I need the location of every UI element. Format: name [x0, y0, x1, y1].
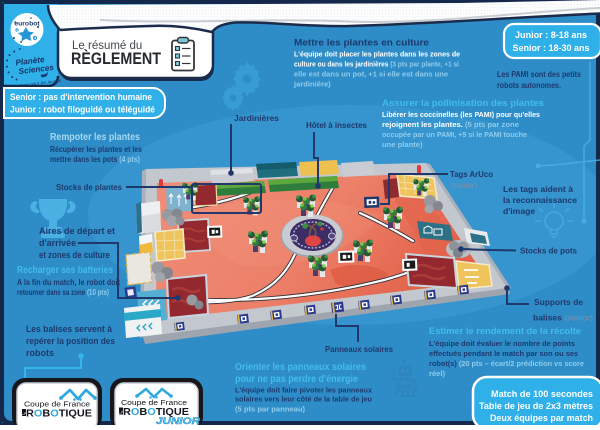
svg-text:Stocks de plantes: Stocks de plantes [56, 182, 122, 192]
svg-text:A la fin du match, le robot do: A la fin du match, le robot doit [17, 278, 120, 287]
svg-text:effectués pendant le match par: effectués pendant le match par son ou se… [429, 349, 578, 358]
svg-text:L'équipe doit faire pivoter le: L'équipe doit faire pivoter les panneaux [235, 386, 373, 395]
svg-text:Récupérer les plantes et les: Récupérer les plantes et les [50, 145, 143, 154]
svg-text:robots autonomes.: robots autonomes. [497, 81, 561, 90]
svg-text:Hôtel à insectes: Hôtel à insectes [306, 120, 367, 130]
svg-text:pour ne pas perdre d'énergie: pour ne pas perdre d'énergie [235, 374, 358, 385]
svg-text:Les PAMI sont des petits: Les PAMI sont des petits [497, 70, 581, 79]
svg-text:Match de 100 secondes: Match de 100 secondes [491, 389, 593, 400]
svg-text:mettre dans les pots (4 pts): mettre dans les pots (4 pts) [50, 155, 140, 164]
svg-text:Senior : 18-30 ans: Senior : 18-30 ans [513, 43, 590, 53]
svg-text:une plante): une plante) [382, 140, 423, 149]
svg-text:LA: LA [118, 410, 124, 415]
svg-text:ROBOTIQUE: ROBOTIQUE [26, 409, 92, 420]
svg-text:repérer la position des: repérer la position des [26, 336, 115, 346]
svg-text:Panneaux solaires: Panneaux solaires [325, 344, 393, 354]
svg-text:Junior : robot filoguidé ou té: Junior : robot filoguidé ou téléguidé [10, 105, 155, 115]
svg-text:(5 pts par panneau): (5 pts par panneau) [235, 405, 306, 414]
svg-text:d'arrivée: d'arrivée [39, 238, 76, 248]
svg-text:balises (senior): balises (senior) [533, 313, 593, 323]
svg-text:occupée par un PAMI, +5 si le: occupée par un PAMI, +5 si le PAMI touch… [382, 130, 527, 139]
svg-text:RÈGLEMENT: RÈGLEMENT [71, 49, 161, 68]
svg-text:Deux équipes par match: Deux équipes par match [490, 413, 593, 424]
svg-text:Aires de départ et: Aires de départ et [39, 226, 115, 236]
svg-text:LA: LA [21, 411, 27, 416]
svg-text:Senior : pas d'intervention hu: Senior : pas d'intervention humaine [10, 92, 152, 102]
svg-text:Les tags aident à: Les tags aident à [503, 184, 573, 194]
svg-text:et zones de culture: et zones de culture [39, 250, 110, 260]
svg-text:elle est dans un pot, +1 si el: elle est dans un pot, +1 si elle est dan… [294, 70, 448, 79]
svg-text:Junior : 8-18 ans: Junior : 8-18 ans [515, 30, 587, 40]
svg-text:robots: robots [26, 348, 54, 358]
svg-text:d'image: d'image [503, 206, 535, 216]
svg-text:retourner dans sa zone (10 pts: retourner dans sa zone (10 pts) [17, 288, 109, 297]
svg-text:Assurer la pollinisation des p: Assurer la pollinisation des plantes [382, 97, 544, 108]
svg-text:la reconnaissance: la reconnaissance [503, 195, 577, 205]
svg-text:réel): réel) [429, 369, 446, 378]
svg-text:Libérer les coccinelles (les P: Libérer les coccinelles (les PAMI) pour … [382, 110, 540, 119]
svg-text:Rempoter les plantes: Rempoter les plantes [50, 132, 140, 143]
svg-text:eurobot: eurobot [14, 21, 40, 28]
svg-text:Recharger ses batteries: Recharger ses batteries [17, 265, 113, 276]
svg-text:Jardinières: Jardinières [234, 113, 279, 123]
svg-text:L'équipe doit placer les plant: L'équipe doit placer les plantes dans le… [294, 50, 460, 59]
svg-text:(senior): (senior) [450, 181, 477, 190]
svg-text:JUNIOR: JUNIOR [156, 416, 200, 425]
svg-text:Coupe de France: Coupe de France [121, 398, 187, 407]
svg-text:robot(s) (20 pts – écart/2 pré: robot(s) (20 pts – écart/2 prédiction vs… [429, 359, 584, 368]
svg-text:jardinière): jardinière) [293, 80, 331, 89]
svg-text:Mettre les plantes en culture: Mettre les plantes en culture [294, 37, 429, 48]
svg-text:L'équipe doit évaluer le nombr: L'équipe doit évaluer le nombre de point… [429, 339, 575, 348]
svg-text:Tags ArUco: Tags ArUco [450, 169, 493, 179]
svg-text:solaires vers leur côté de la: solaires vers leur côté de la table de j… [235, 395, 372, 404]
svg-text:Stocks de pots: Stocks de pots [520, 246, 577, 256]
svg-text:Les balises servent à: Les balises servent à [26, 324, 113, 334]
svg-text:Supports de: Supports de [534, 297, 583, 307]
svg-text:Orienter les panneaux solaires: Orienter les panneaux solaires [235, 362, 366, 373]
svg-text:rejoignent les plantes. (5 pts: rejoignent les plantes. (5 pts par zone [382, 120, 519, 129]
svg-text:Table de jeu de 2x3 mètres: Table de jeu de 2x3 mètres [479, 401, 593, 412]
svg-text:Coupe de France: Coupe de France [24, 400, 90, 409]
svg-text:Estimer le rendement de la réc: Estimer le rendement de la récolte [429, 325, 581, 336]
svg-text:culture ou dans les jardinière: culture ou dans les jardinières (3 pts p… [294, 60, 459, 69]
